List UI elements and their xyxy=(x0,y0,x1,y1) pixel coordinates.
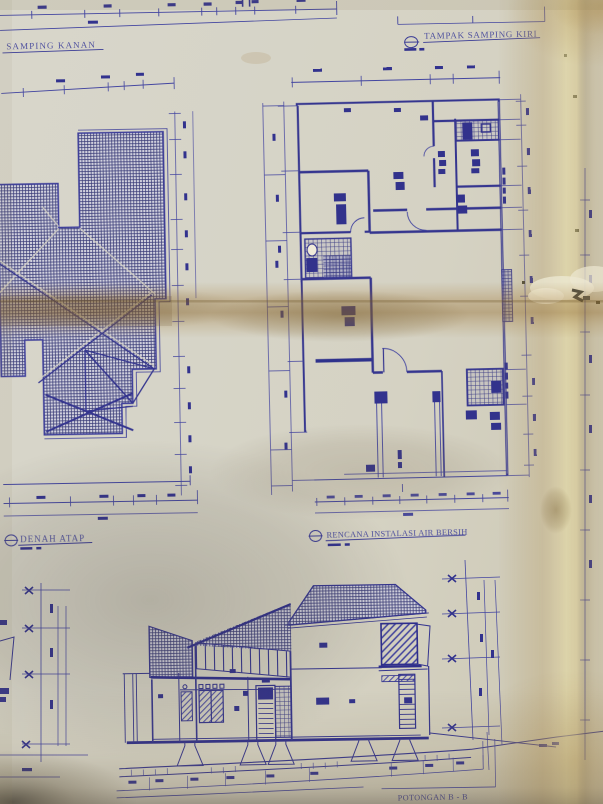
svg-text:SAMPING KANAN: SAMPING KANAN xyxy=(6,40,96,52)
